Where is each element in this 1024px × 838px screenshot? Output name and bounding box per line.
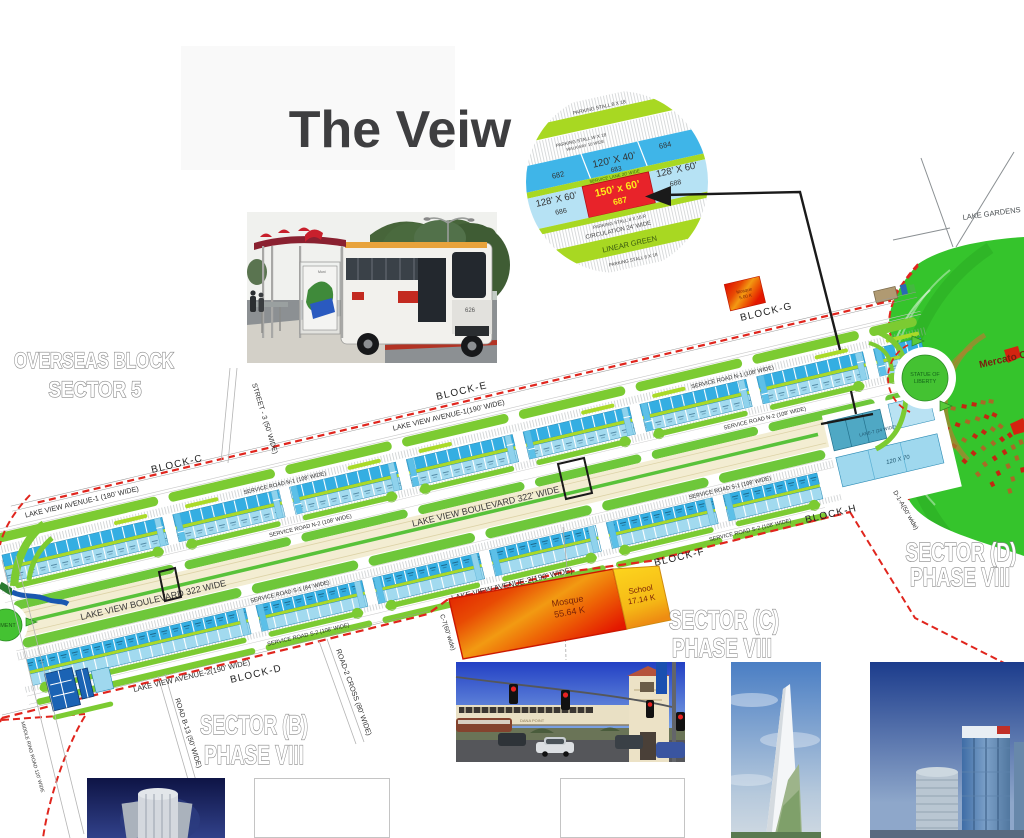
svg-text:PHASE VIII: PHASE VIII: [672, 633, 772, 663]
svg-text:Muni: Muni: [318, 270, 326, 274]
svg-text:SECTOR 5: SECTOR 5: [49, 377, 142, 402]
svg-text:PHASE VIII: PHASE VIII: [910, 562, 1010, 592]
svg-text:LIBERTY: LIBERTY: [914, 379, 937, 385]
svg-text:PHASE VIII: PHASE VIII: [204, 740, 304, 770]
svg-text:SECTOR (C): SECTOR (C): [669, 605, 779, 635]
svg-text:SECTOR (B): SECTOR (B): [200, 710, 308, 740]
svg-text:STATUE OF: STATUE OF: [910, 372, 940, 378]
svg-text:DANA POINT: DANA POINT: [520, 718, 545, 723]
svg-text:MENT: MENT: [0, 623, 16, 629]
svg-text:626: 626: [465, 308, 476, 314]
svg-text:OVERSEAS BLOCK: OVERSEAS BLOCK: [14, 348, 174, 373]
svg-text:The Veiw: The Veiw: [289, 101, 512, 159]
